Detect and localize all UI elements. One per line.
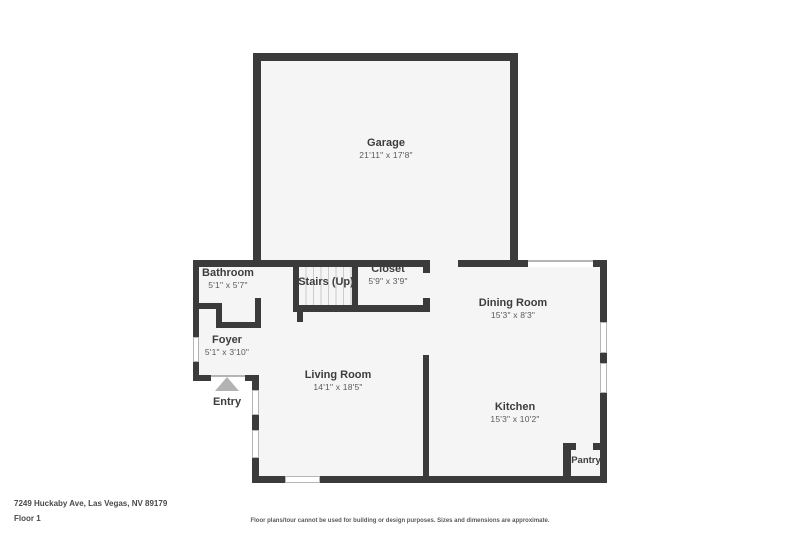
main-wall-top-mid-segment bbox=[458, 260, 528, 267]
room-label-closet: Closet 5'9" x 3'9" bbox=[368, 263, 407, 287]
room-dims-closet: 5'9" x 3'9" bbox=[368, 276, 407, 287]
footer-floor-label: Floor 1 bbox=[14, 514, 41, 523]
room-name-foyer: Foyer bbox=[205, 334, 249, 347]
bottom-wall-window bbox=[285, 476, 320, 483]
room-name-bathroom: Bathroom bbox=[202, 267, 254, 280]
room-label-pantry: Pantry bbox=[571, 455, 601, 466]
room-name-living: Living Room bbox=[305, 369, 372, 382]
stairs-wall-stub bbox=[297, 312, 303, 322]
bottom-wall-right-segment bbox=[320, 476, 607, 483]
room-name-closet: Closet bbox=[368, 263, 407, 276]
room-label-kitchen: Kitchen 15'3" x 10'2" bbox=[490, 401, 539, 425]
living-left-window-1 bbox=[252, 390, 259, 415]
room-dims-garage: 21'11" x 17'8" bbox=[359, 150, 413, 161]
lower-floor-area bbox=[255, 378, 604, 480]
living-left-wall-a bbox=[252, 375, 259, 390]
room-label-stairs: Stairs (Up) bbox=[298, 276, 354, 289]
living-left-wall-c bbox=[252, 458, 259, 483]
living-kitchen-divider-wall bbox=[423, 355, 429, 483]
room-dims-foyer: 5'1" x 3'10" bbox=[205, 347, 249, 358]
right-wall-window-1 bbox=[600, 322, 607, 353]
floor-plan: Entry Garage 21'11" x 17'8" Bathroom 5'1… bbox=[0, 0, 800, 533]
garage-wall-right bbox=[510, 53, 518, 267]
room-dims-dining: 15'3" x 8'3" bbox=[479, 310, 547, 321]
bathroom-inner-wall-h2 bbox=[216, 322, 261, 328]
room-name-kitchen: Kitchen bbox=[490, 401, 539, 414]
pantry-wall-top-left bbox=[563, 443, 576, 450]
entry-arrow-icon bbox=[215, 377, 239, 391]
left-wall-upper bbox=[193, 260, 199, 337]
garage-wall-top bbox=[253, 53, 518, 61]
stairs-wall-bottom bbox=[293, 305, 430, 312]
living-left-window-2 bbox=[252, 430, 259, 458]
room-label-bathroom: Bathroom 5'1" x 5'7" bbox=[202, 267, 254, 291]
entry-label: Entry bbox=[213, 396, 241, 408]
pantry-wall-top-right bbox=[593, 443, 607, 450]
room-dims-bathroom: 5'1" x 5'7" bbox=[202, 280, 254, 291]
room-name-garage: Garage bbox=[359, 137, 413, 150]
room-name-stairs: Stairs (Up) bbox=[298, 276, 354, 289]
room-label-living: Living Room 14'1" x 18'5" bbox=[305, 369, 372, 393]
dining-top-window bbox=[528, 260, 593, 267]
living-left-wall-b bbox=[252, 415, 259, 430]
bathroom-right-wall-top bbox=[255, 260, 261, 267]
footer-disclaimer: Floor plans/tour cannot be used for buil… bbox=[250, 518, 549, 524]
right-wall-upper bbox=[600, 260, 607, 322]
room-label-garage: Garage 21'11" x 17'8" bbox=[359, 137, 413, 161]
room-dims-living: 14'1" x 18'5" bbox=[305, 382, 372, 393]
footer-address: 7249 Huckaby Ave, Las Vegas, NV 89179 bbox=[14, 499, 167, 508]
room-label-foyer: Foyer 5'1" x 3'10" bbox=[205, 334, 249, 358]
right-wall-lower bbox=[600, 393, 607, 483]
room-name-dining: Dining Room bbox=[479, 297, 547, 310]
room-label-dining: Dining Room 15'3" x 8'3" bbox=[479, 297, 547, 321]
right-wall-window-2 bbox=[600, 363, 607, 393]
closet-wall-right-bottom bbox=[423, 298, 430, 312]
right-wall-mid-post bbox=[600, 353, 607, 363]
room-dims-kitchen: 15'3" x 10'2" bbox=[490, 414, 539, 425]
foyer-window bbox=[193, 337, 199, 362]
closet-wall-right-top bbox=[423, 260, 430, 273]
foyer-bottom-wall-left bbox=[193, 375, 211, 381]
room-name-pantry: Pantry bbox=[571, 455, 601, 466]
garage-wall-left bbox=[253, 53, 261, 267]
